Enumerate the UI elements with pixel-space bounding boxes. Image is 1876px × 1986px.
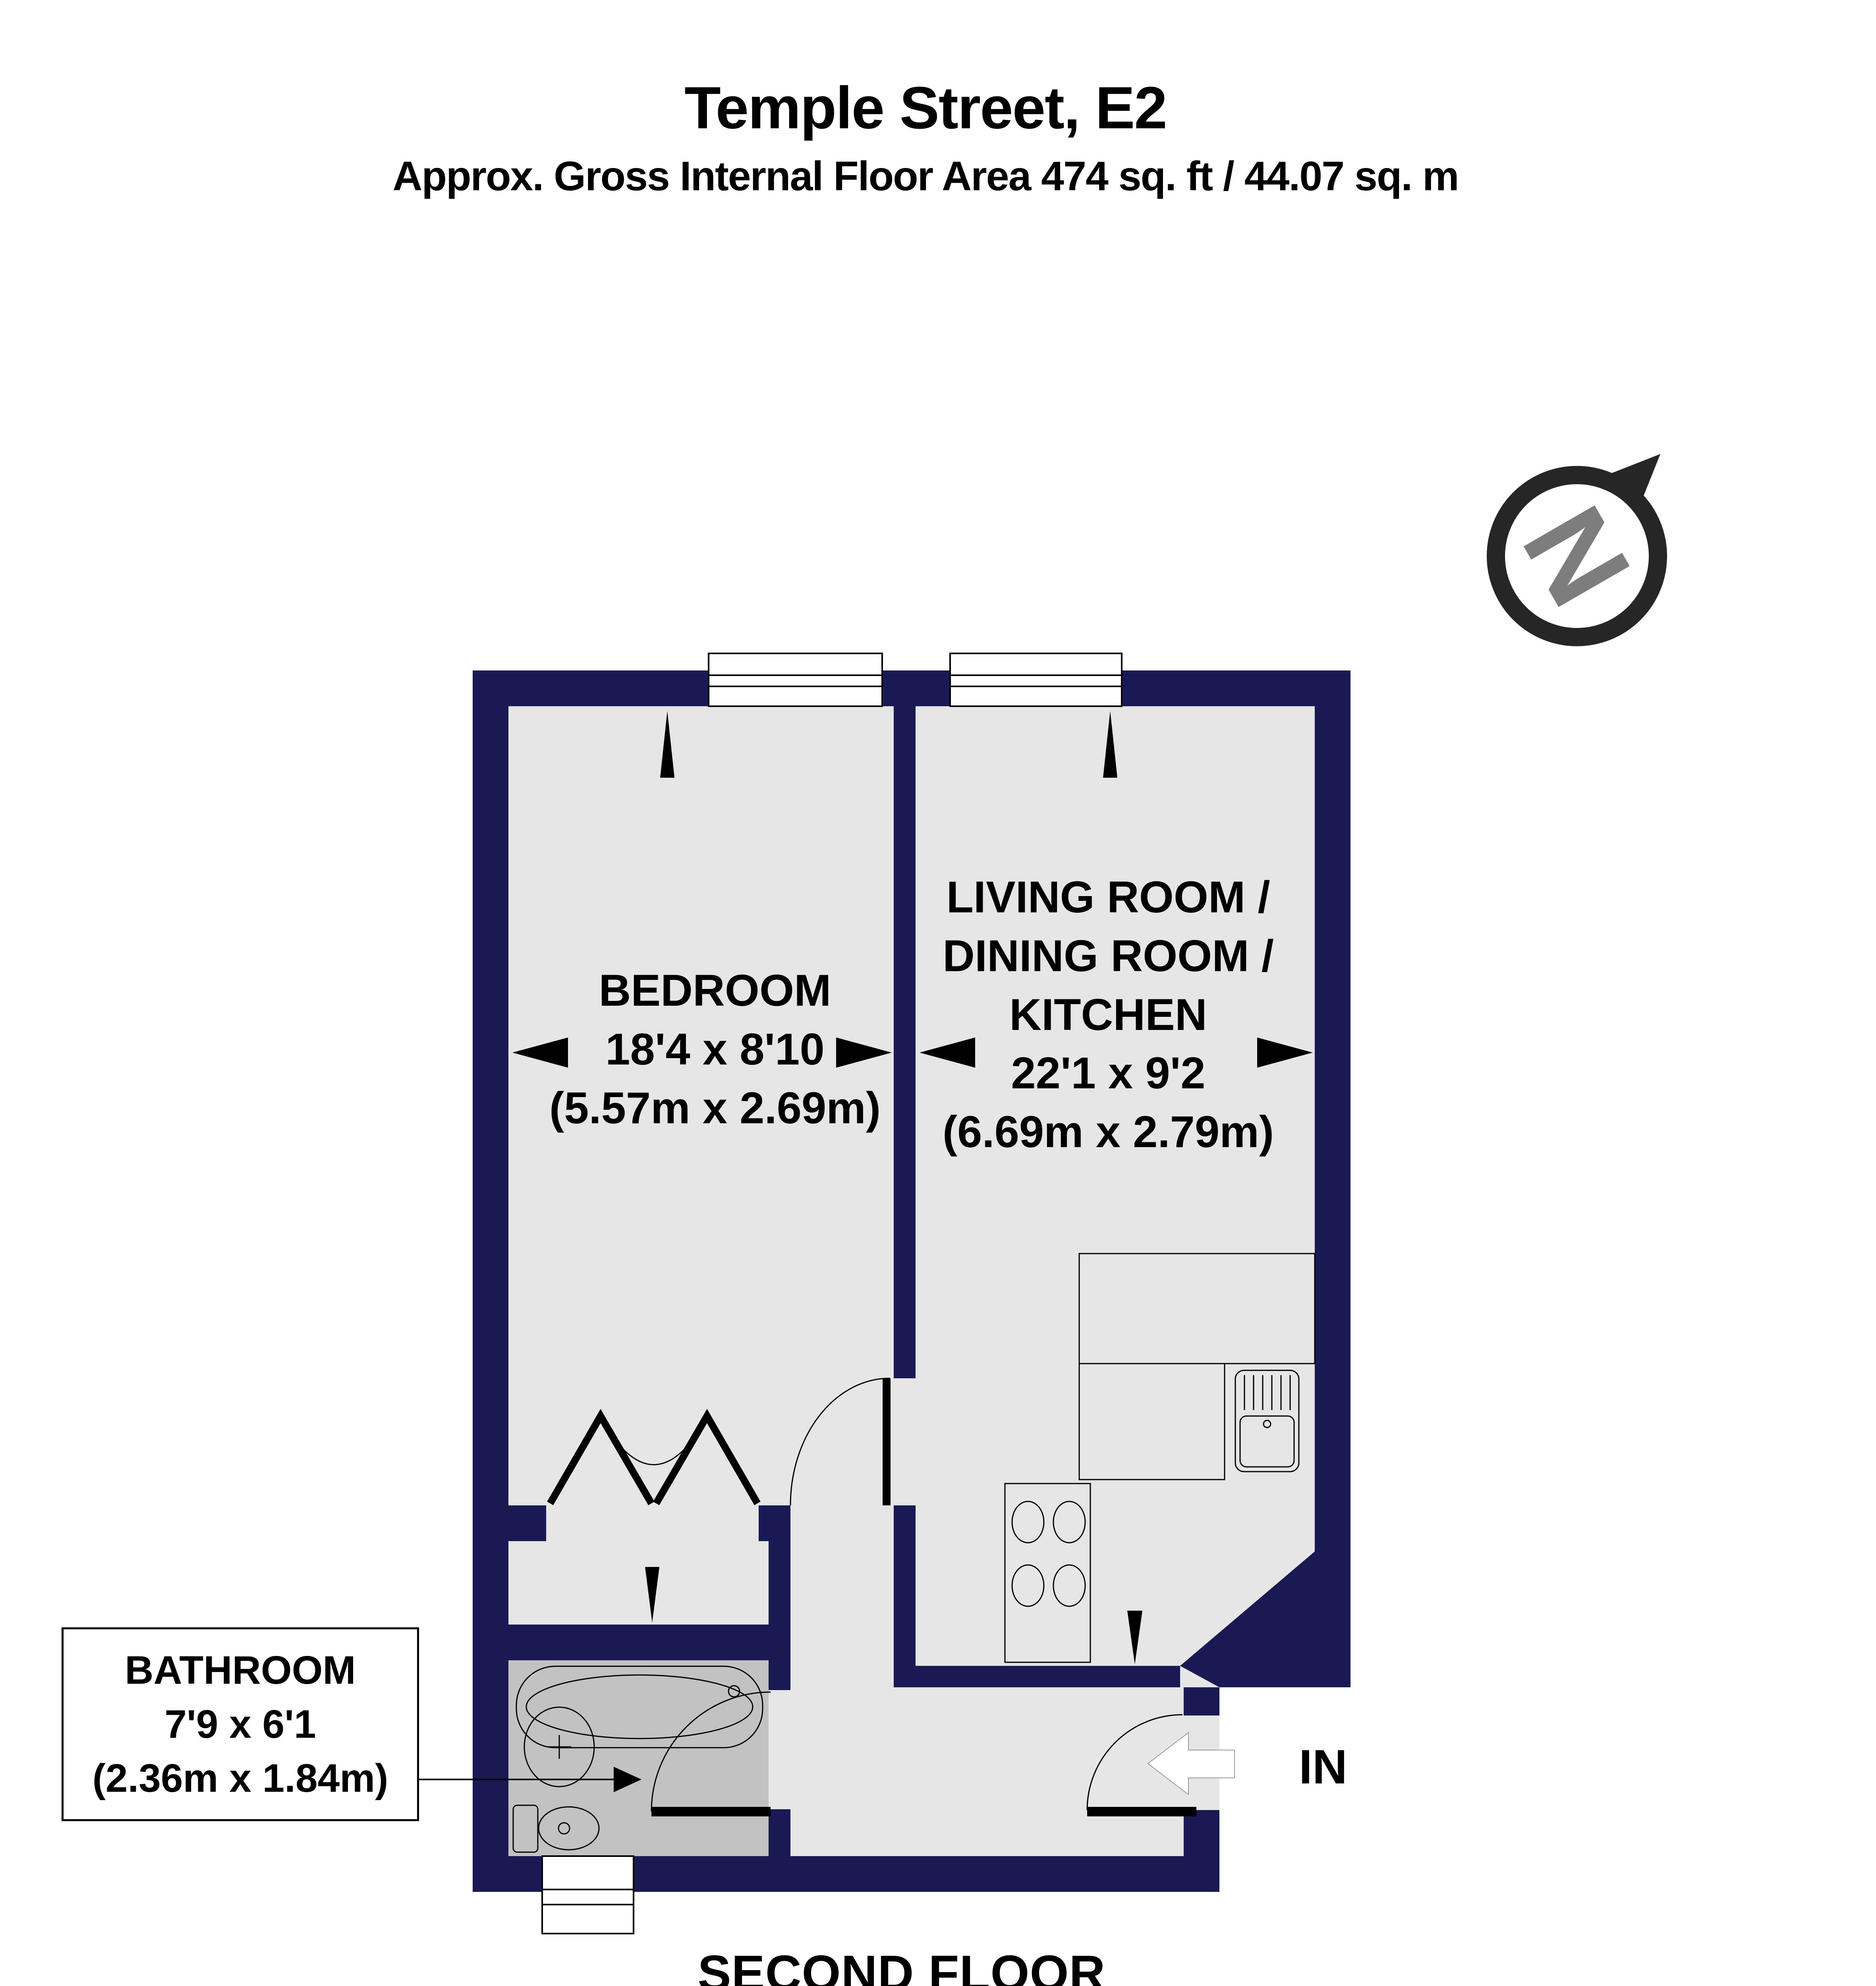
bathroom-callout: BATHROOM 7'9 x 6'1 (2.36m x 1.84m): [62, 1627, 419, 1821]
living-dims-metric: (6.69m x 2.79m): [830, 1103, 1386, 1161]
wall-bedroom-bottom-2: [759, 1505, 790, 1541]
living-name-line2: DINING ROOM /: [830, 927, 1386, 985]
wall-entry-upper: [1184, 1687, 1219, 1716]
page-title: Temple Street, E2: [0, 73, 1851, 142]
living-name-line1: LIVING ROOM /: [830, 868, 1386, 927]
wall-bottom-1: [473, 1856, 542, 1892]
floor-level-label: SECOND FLOOR: [568, 1944, 1235, 1986]
wall-partition-stub: [894, 1505, 916, 1687]
living-room-label: LIVING ROOM / DINING ROOM / KITCHEN 22'1…: [830, 868, 1386, 1161]
bathroom-floor: [508, 1660, 769, 1856]
compass-icon: N: [1496, 454, 1660, 637]
page-subtitle: Approx. Gross Internal Floor Area 474 sq…: [0, 153, 1851, 200]
wall-bathroom-right-upper: [769, 1541, 790, 1690]
living-name-line3: KITCHEN: [830, 985, 1386, 1044]
window-bedroom-icon: [709, 653, 882, 706]
wall-bathroom-top: [473, 1625, 790, 1660]
bathroom-name: BATHROOM: [64, 1643, 417, 1697]
floorplan-page: { "title": "Temple Street, E2", "subtitl…: [0, 0, 1876, 1986]
bathroom-dims-metric: (2.36m x 1.84m): [64, 1751, 417, 1805]
wall-bathroom-right-lower: [769, 1809, 790, 1856]
outside-notch: [1219, 1687, 1378, 1910]
window-living-icon: [950, 653, 1122, 706]
wall-top-2: [882, 670, 950, 706]
living-dims-imperial: 22'1 x 9'2: [830, 1044, 1386, 1103]
wall-bottom-2: [634, 1856, 1219, 1892]
entrance-label: IN: [1299, 1739, 1418, 1795]
wall-bedroom-bottom-1: [473, 1505, 546, 1541]
floors: [473, 670, 1378, 1910]
window-bathroom-icon: [542, 1856, 634, 1934]
bathroom-dims-imperial: 7'9 x 6'1: [64, 1697, 417, 1751]
wall-left: [473, 670, 508, 1892]
wall-kitchen-bottom: [894, 1666, 1180, 1687]
